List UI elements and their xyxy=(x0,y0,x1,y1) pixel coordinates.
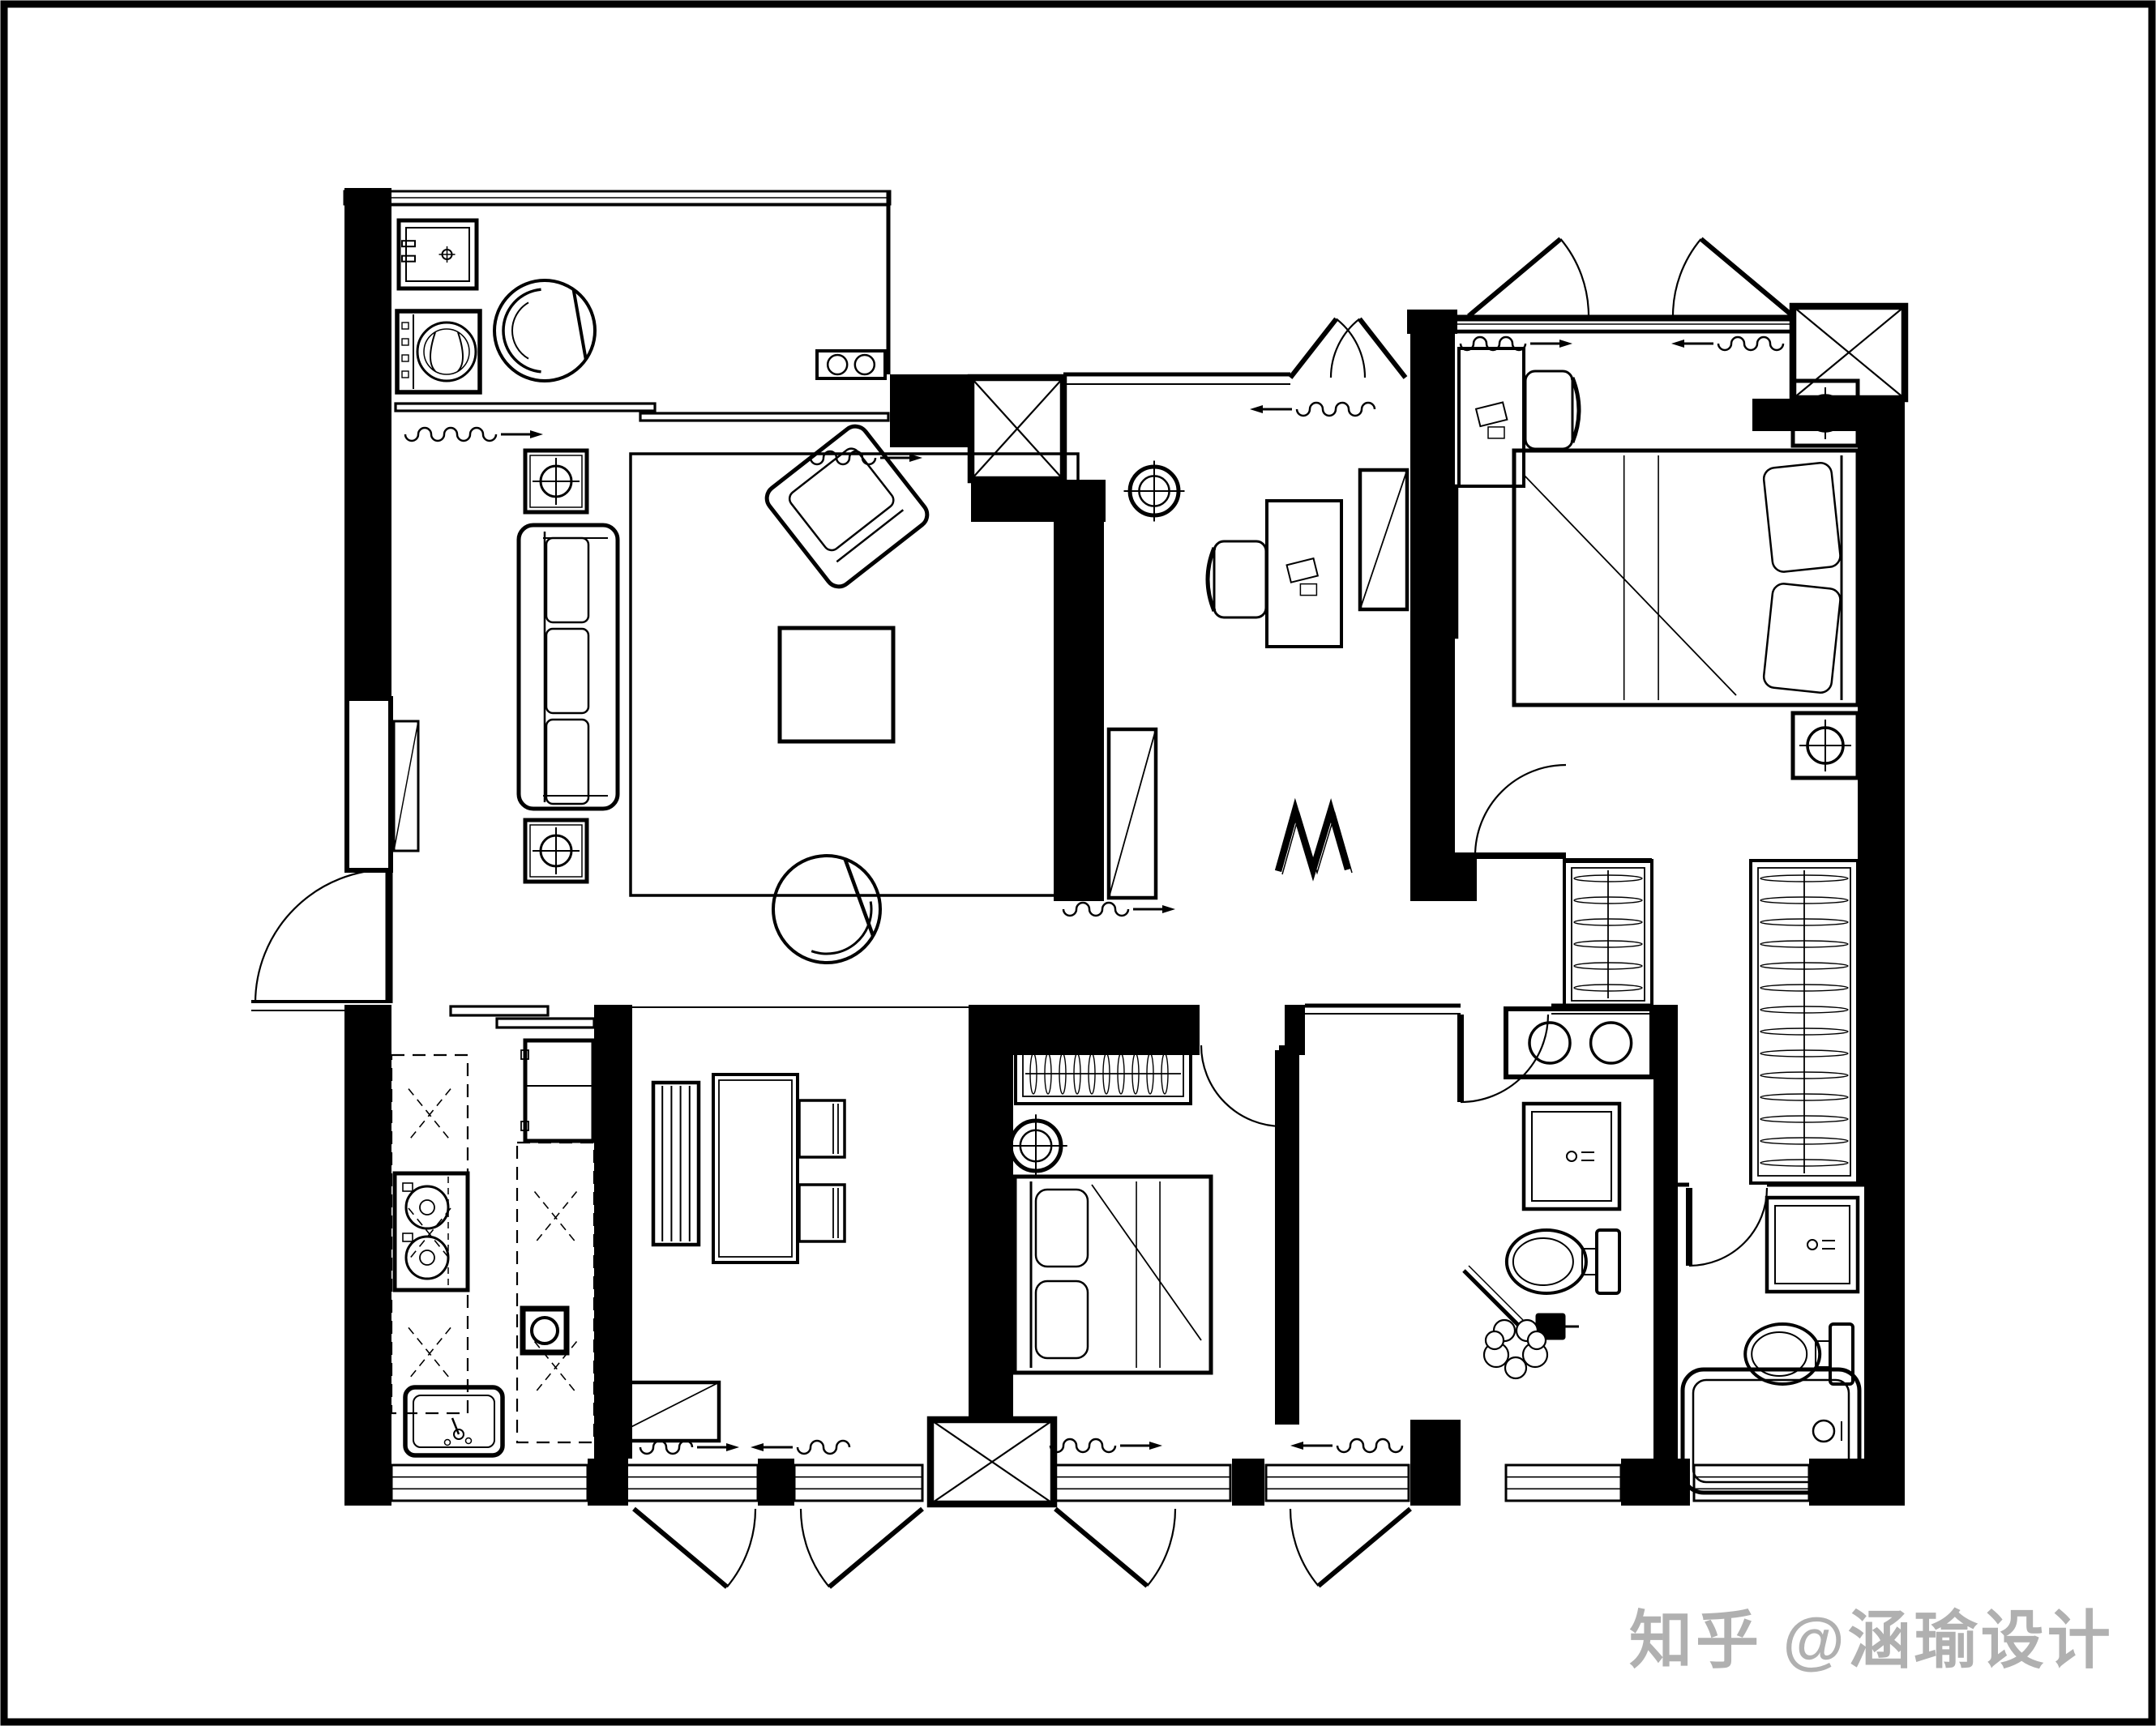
wall-pier-bedroom2-south xyxy=(1232,1459,1264,1506)
folding-screen xyxy=(1278,810,1352,874)
window-bathM-south xyxy=(1506,1465,1621,1501)
floor-plan-page: 知乎 @涵瑜设计 xyxy=(0,0,2156,1726)
curtain-dining-window-east xyxy=(751,1441,849,1454)
wall-pier-dining xyxy=(758,1459,794,1506)
door-bedroom2 xyxy=(1201,1045,1282,1126)
window-dining-south-b xyxy=(794,1465,922,1501)
sash-study-window-left xyxy=(1290,319,1365,378)
wall-under-ne-shaft xyxy=(1752,399,1905,431)
curtain-bedroom2-window-east xyxy=(1290,1439,1402,1452)
door-bathroom-2 xyxy=(1689,1188,1767,1266)
window-kitchen-south xyxy=(391,1465,588,1501)
nightstand-south xyxy=(1793,713,1858,778)
duct-shaft-south xyxy=(930,1420,1054,1504)
duct-shaft-entry xyxy=(971,378,1063,480)
coffee-table xyxy=(780,628,893,741)
side-table-north xyxy=(525,451,587,512)
bath-mirror-cabinet xyxy=(1524,1104,1619,1209)
sash-study-window-right xyxy=(1331,319,1405,378)
slider-balcony-rail-a xyxy=(396,404,655,411)
dining-bench xyxy=(653,1083,699,1245)
wall-bedroom2-north xyxy=(1013,1005,1200,1055)
wall-bedroom-northwest-cap xyxy=(1407,310,1457,334)
room-study xyxy=(1104,384,1410,899)
floor-plan-svg xyxy=(0,0,2156,1726)
watermark-text: 知乎 @涵瑜设计 xyxy=(1629,1590,2114,1681)
curtain-study-window xyxy=(1250,403,1375,416)
study-desk xyxy=(1267,501,1341,647)
slider-kitchen-rail-a xyxy=(451,1006,548,1015)
wall-pier-bath-south xyxy=(1621,1459,1690,1506)
window-balcony-north xyxy=(344,191,890,204)
kitchen-counter-east xyxy=(517,1143,594,1442)
bath2-toilet xyxy=(1745,1324,1853,1384)
laundry-sink xyxy=(399,220,477,288)
sash-dining-right xyxy=(801,1509,922,1587)
bath2-vanity xyxy=(1767,1198,1858,1292)
sash-dining-left xyxy=(634,1509,755,1587)
wall-kitchen-west xyxy=(344,1005,391,1506)
study-bookshelf xyxy=(1360,470,1407,609)
dining-chair-north xyxy=(799,1100,845,1157)
wall-bath-divider xyxy=(1653,1005,1678,1459)
plan-root xyxy=(4,4,2152,1722)
tv-panel xyxy=(394,721,418,851)
walls xyxy=(344,188,1905,1506)
side-table-south xyxy=(525,820,587,882)
door-main-entry xyxy=(255,869,389,1003)
gas-valve xyxy=(523,1309,567,1352)
curtain-dining-window-west xyxy=(640,1441,739,1454)
dining-chair-south xyxy=(799,1185,845,1241)
wall-living-west xyxy=(344,405,391,699)
closet-wardrobe-west xyxy=(1564,861,1652,1008)
slider-kitchen-rail-b xyxy=(497,1019,594,1027)
living-wall-cabinet xyxy=(1109,729,1156,898)
sofa xyxy=(519,525,618,809)
bedroom2-ceiling-lamp xyxy=(1004,1114,1067,1177)
bedroom2-bed xyxy=(1015,1177,1211,1373)
sash-bedroom-north-right xyxy=(1673,239,1793,316)
wall-balcony-west xyxy=(344,188,391,405)
room-hallway xyxy=(1104,899,1410,1005)
sash-bedroom2-right xyxy=(1290,1509,1410,1586)
curtain-living-east-wall xyxy=(1063,903,1175,916)
bath-vanity-counter xyxy=(1506,1009,1652,1077)
wall-porch-column xyxy=(890,374,971,447)
duct-shaft-northeast xyxy=(1793,306,1905,399)
door-master-bedroom xyxy=(1475,765,1566,856)
wall-bedroom2-west xyxy=(969,1005,1013,1420)
wall-bedroom2-east xyxy=(1275,1050,1299,1425)
wall-kitchen-east xyxy=(594,1005,632,1459)
barrel-chair xyxy=(773,856,880,963)
closet-wardrobe-east xyxy=(1751,861,1858,1183)
sliding-doors xyxy=(396,404,888,1027)
room-bedroom-2 xyxy=(1013,1055,1275,1425)
wall-pier-kitchen-dining xyxy=(588,1459,628,1506)
window-dining-south-a xyxy=(624,1465,758,1501)
room-living xyxy=(391,421,1054,1005)
bath-toilet xyxy=(1507,1230,1619,1293)
wall-east-lower xyxy=(1864,1185,1905,1506)
bedroom-chair xyxy=(1525,371,1579,449)
window-bedroom2-south-a xyxy=(1054,1465,1230,1501)
shower-head xyxy=(1484,1314,1579,1378)
hanging-chair xyxy=(494,280,595,381)
hall-ceiling-lamp xyxy=(1124,461,1185,522)
window-bedroom2-south-b xyxy=(1266,1465,1409,1501)
curtain-bedroom2-window-west xyxy=(1050,1439,1162,1452)
wall-pier-bath-southwest xyxy=(1410,1420,1461,1506)
wall-bedroom-west xyxy=(1410,332,1455,852)
room-master-bathroom xyxy=(1461,1015,1653,1459)
sash-bedroom-north-left xyxy=(1469,239,1589,316)
study-chair xyxy=(1208,541,1266,617)
tv-console xyxy=(347,699,391,870)
slider-balcony-rail-b xyxy=(640,413,888,421)
sash-bedroom2-left xyxy=(1055,1509,1175,1586)
wall-east-upper xyxy=(1858,399,1905,1185)
kitchen-sink xyxy=(405,1387,503,1455)
washing-machine xyxy=(397,311,480,392)
fridge xyxy=(521,1040,593,1141)
curtain-living-northwest xyxy=(405,428,543,441)
balcony-counter xyxy=(817,351,885,378)
wall-bedroom2-door-pier xyxy=(1285,1005,1305,1055)
wall-bedroom-south-pier xyxy=(1410,852,1477,901)
master-bed xyxy=(1514,451,1858,705)
window-sashes xyxy=(634,239,1793,1587)
curtain-bedroom-window-east xyxy=(1671,337,1783,350)
dining-table xyxy=(713,1074,798,1262)
